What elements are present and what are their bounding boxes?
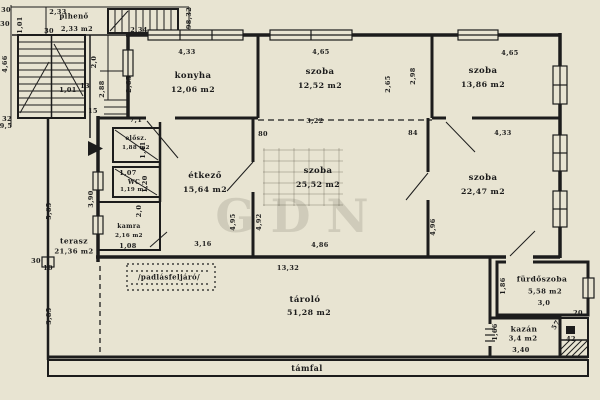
dimension-label-28: 3,16 bbox=[194, 241, 211, 248]
room-name-furdoszoba: fürdőszoba bbox=[517, 275, 567, 283]
room-name-kamra: kamra bbox=[117, 224, 140, 230]
dimension-label-37: 5,65 bbox=[46, 202, 53, 219]
room-name-kazan: kazán bbox=[511, 325, 538, 333]
dimension-label-4: 2,33 bbox=[49, 9, 66, 16]
room-name-szoba-3: szoba bbox=[304, 167, 333, 176]
room-area-terasz: 21,36 m2 bbox=[54, 249, 93, 256]
room-area-etkezo: 15,64 m2 bbox=[183, 186, 227, 194]
dimension-label-27: 1,08 bbox=[119, 243, 136, 250]
dimension-label-0: 30 bbox=[1, 7, 11, 14]
dimension-label-34: 4,86 bbox=[311, 242, 328, 249]
labels-layer: /padlásfeljáró/ támfal pihenő2,33 m2kony… bbox=[0, 0, 600, 400]
dimension-label-45: 3,40 bbox=[512, 347, 529, 354]
dimension-label-5: 30 bbox=[44, 28, 54, 35]
dimension-label-18: 2,65 bbox=[385, 75, 392, 92]
dimension-label-47: 57 bbox=[551, 319, 562, 331]
dimension-label-16: 4,33 bbox=[178, 49, 195, 56]
dimension-label-19: 2,98 bbox=[410, 67, 417, 84]
room-name-szoba-1: szoba bbox=[306, 68, 335, 77]
retaining-wall-label: támfal bbox=[291, 364, 322, 372]
room-area-szoba-3: 25,52 m2 bbox=[296, 181, 340, 189]
room-name-terasz: terasz bbox=[60, 237, 88, 245]
dimension-label-10: 15 bbox=[88, 108, 98, 115]
dimension-label-38: 30 bbox=[31, 258, 41, 265]
dimension-label-30: 80 bbox=[258, 131, 268, 138]
room-name-konyha: konyha bbox=[175, 72, 212, 81]
room-area-szoba-1: 12,52 m2 bbox=[298, 82, 342, 90]
dimension-label-31: 3,22 bbox=[306, 118, 323, 125]
attic-access-label: /padlásfeljáró/ bbox=[138, 274, 200, 281]
room-area-konyha: 12,06 m2 bbox=[171, 86, 215, 94]
dimension-label-8: 2,0 bbox=[91, 56, 98, 69]
dimension-label-41: 13,32 bbox=[277, 265, 299, 272]
room-area-piheno: 2,33 m2 bbox=[61, 26, 93, 32]
dimension-label-25: 3,90 bbox=[88, 190, 95, 207]
dimension-label-29: 4,95 bbox=[230, 213, 237, 230]
dimension-label-40: 3,85 bbox=[46, 307, 53, 324]
dimension-label-46: 20 bbox=[573, 310, 583, 317]
dimension-label-7: 98,32 bbox=[186, 7, 193, 29]
room-area-tarolo: 51,28 m2 bbox=[287, 309, 331, 317]
dimension-label-2: 1,01 bbox=[17, 16, 24, 33]
room-area-kazan: 3,4 m2 bbox=[509, 336, 538, 343]
dimension-label-33: 4,92 bbox=[256, 213, 263, 230]
room-name-szoba-2: szoba bbox=[469, 67, 498, 76]
room-name-wc: WC bbox=[128, 180, 140, 186]
dimension-label-17: 4,65 bbox=[312, 49, 329, 56]
floorplan-page: GDN /padlásfeljáró/ támfal pihenő2,33 m2… bbox=[0, 0, 600, 400]
dimension-label-6: 2,34 bbox=[130, 27, 147, 34]
dimension-label-23: 1,07 bbox=[119, 170, 136, 177]
room-name-szoba-4: szoba bbox=[469, 174, 498, 183]
room-name-etkezo: étkező bbox=[188, 172, 222, 181]
room-area-szoba-2: 13,86 m2 bbox=[461, 81, 505, 89]
dimension-label-48: 42 bbox=[566, 336, 576, 343]
dimension-label-36: 4,96 bbox=[430, 218, 437, 235]
dimension-label-9: 2,88 bbox=[99, 80, 106, 97]
dimension-label-32: 84 bbox=[408, 130, 418, 137]
dimension-label-42: 1,86 bbox=[500, 277, 507, 294]
room-area-szoba-4: 22,47 m2 bbox=[461, 188, 505, 196]
dimension-label-44: 1,66 bbox=[492, 323, 499, 340]
dimension-label-14: 9,5 bbox=[0, 123, 12, 130]
dimension-label-3: 4,66 bbox=[2, 55, 9, 72]
room-name-tarolo: tároló bbox=[290, 296, 321, 305]
room-area-kamra: 2,16 m2 bbox=[115, 234, 143, 240]
dimension-label-20: 4,65 bbox=[501, 50, 518, 57]
room-area-furdoszoba: 5,58 m2 bbox=[528, 289, 562, 296]
dimension-label-35: 4,33 bbox=[494, 130, 511, 137]
dimension-label-21: 7,1 bbox=[130, 117, 143, 124]
dimension-label-43: 3,0 bbox=[538, 300, 551, 307]
dimension-label-24: 1,20 bbox=[142, 175, 149, 192]
dimension-label-26: 2,0 bbox=[136, 205, 143, 218]
dimension-label-15: 2,65 bbox=[126, 75, 133, 92]
dimension-label-12: 13 bbox=[80, 83, 90, 90]
dimension-label-22: 1,41 bbox=[140, 141, 147, 158]
dimension-label-11: 1,01 bbox=[59, 87, 76, 94]
dimension-label-39: 10 bbox=[43, 265, 53, 272]
dimension-label-1: 30 bbox=[0, 21, 10, 28]
